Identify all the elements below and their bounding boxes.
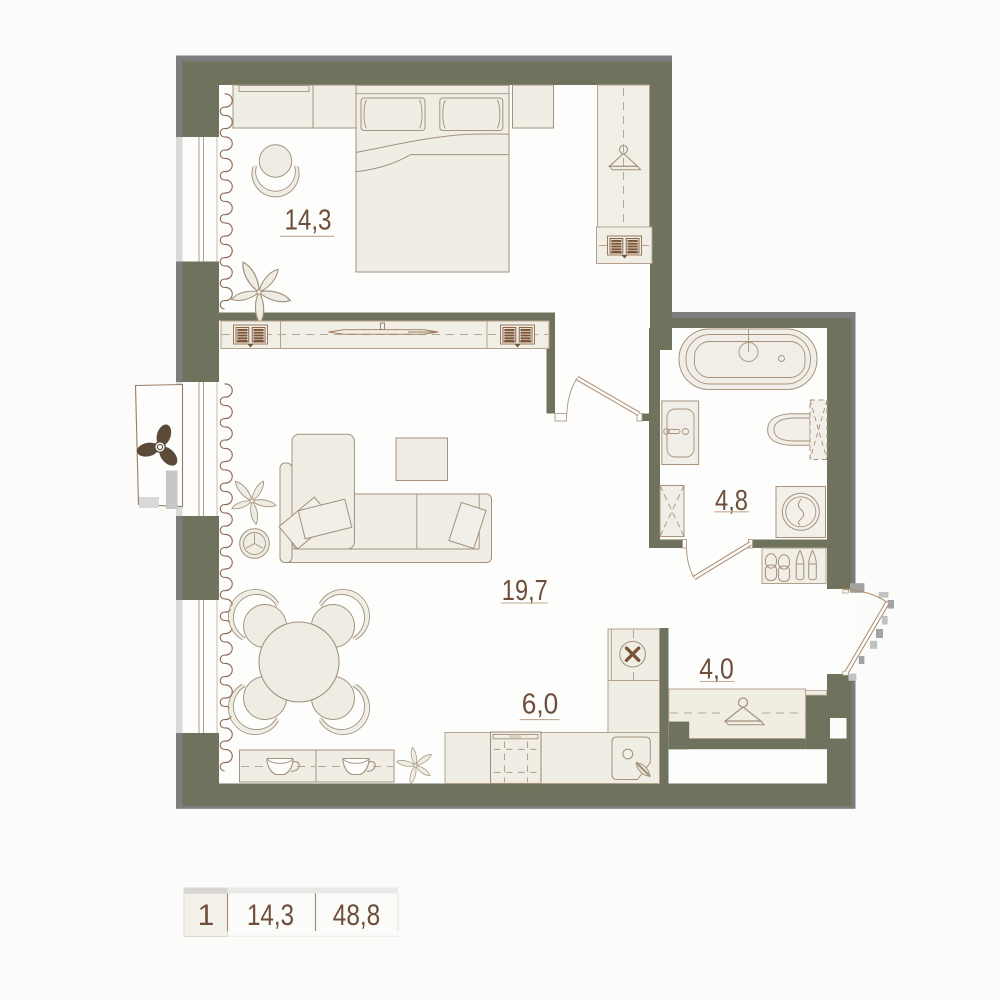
- svg-text:48,8: 48,8: [333, 899, 381, 932]
- svg-text:19,7: 19,7: [502, 575, 548, 607]
- svg-text:4,0: 4,0: [699, 654, 734, 686]
- svg-text:6,0: 6,0: [522, 689, 559, 721]
- svg-text:1: 1: [198, 899, 215, 932]
- svg-text:14,3: 14,3: [247, 899, 294, 932]
- svg-text:14,3: 14,3: [285, 205, 332, 237]
